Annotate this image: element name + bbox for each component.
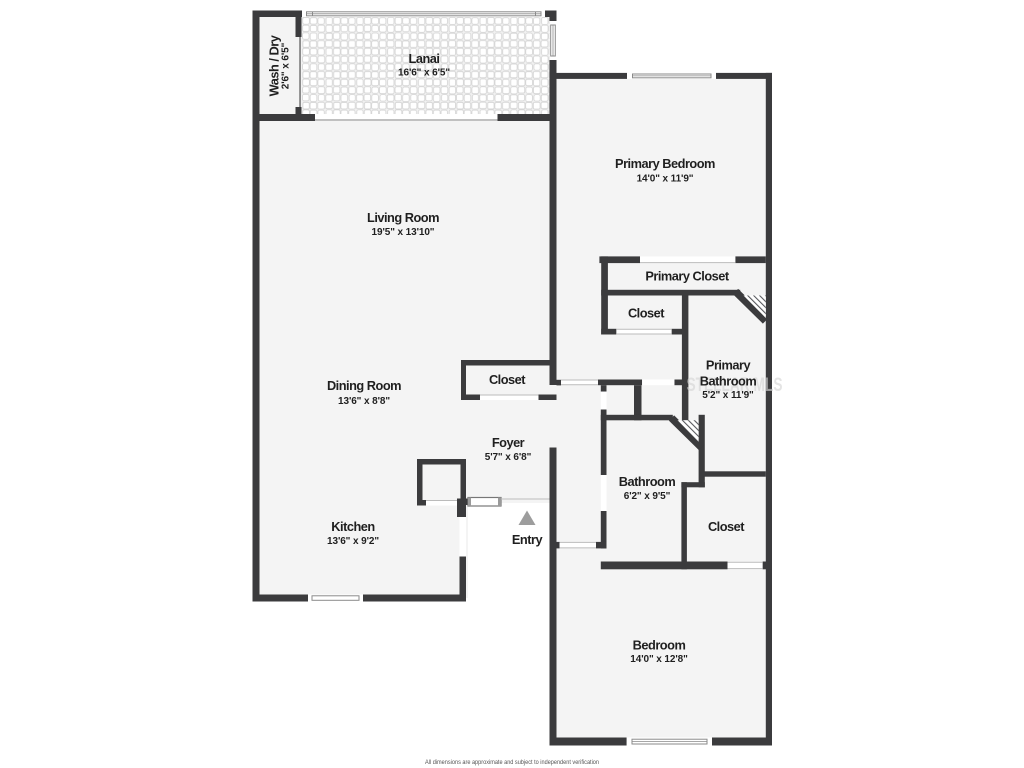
svg-text:2'6" x 6'5": 2'6" x 6'5"	[281, 42, 292, 89]
svg-text:5'2" x 11'9": 5'2" x 11'9"	[702, 390, 754, 401]
svg-text:Bedroom: Bedroom	[633, 638, 686, 653]
svg-text:Closet: Closet	[628, 306, 665, 321]
svg-text:Primary Bedroom: Primary Bedroom	[615, 156, 715, 171]
svg-text:Foyer: Foyer	[492, 435, 525, 450]
svg-text:Bathroom: Bathroom	[619, 474, 676, 489]
svg-text:5'7" x 6'8": 5'7" x 6'8"	[485, 452, 532, 463]
svg-text:Entry: Entry	[512, 532, 544, 547]
svg-text:Lanai: Lanai	[409, 51, 440, 66]
svg-text:13'6" x 9'2": 13'6" x 9'2"	[327, 536, 379, 547]
svg-text:Dining Room: Dining Room	[327, 378, 401, 393]
svg-text:14'0" x 11'9": 14'0" x 11'9"	[637, 174, 694, 185]
svg-text:Living Room: Living Room	[367, 210, 439, 225]
svg-text:Wash / Dry: Wash / Dry	[267, 34, 282, 96]
svg-text:6'2" x 9'5": 6'2" x 9'5"	[624, 491, 671, 502]
svg-text:Closet: Closet	[708, 519, 745, 534]
svg-text:13'6" x 8'8": 13'6" x 8'8"	[338, 396, 390, 407]
svg-text:Primary Closet: Primary Closet	[645, 269, 730, 284]
svg-text:Bathroom: Bathroom	[700, 374, 757, 389]
svg-text:Closet: Closet	[489, 372, 526, 387]
svg-text:16'6" x 6'5": 16'6" x 6'5"	[398, 68, 450, 79]
svg-text:All dimensions are approximate: All dimensions are approximate and subje…	[425, 759, 599, 766]
svg-text:14'0" x 12'8": 14'0" x 12'8"	[630, 654, 688, 665]
svg-text:19'5" x 13'10": 19'5" x 13'10"	[372, 227, 435, 238]
svg-text:Kitchen: Kitchen	[331, 519, 375, 534]
svg-text:Primary: Primary	[706, 358, 752, 373]
